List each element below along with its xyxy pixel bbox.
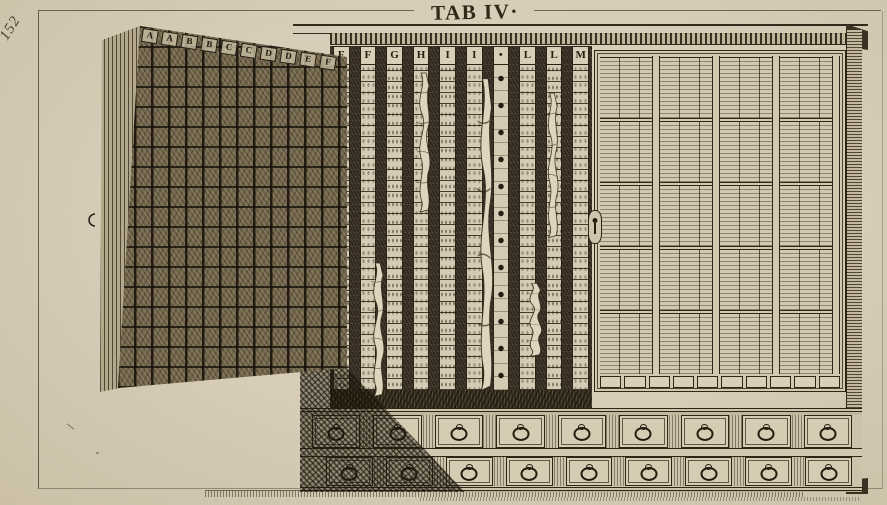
door-bottom-cell <box>746 376 767 388</box>
drawer <box>435 415 483 448</box>
drawer <box>558 415 606 448</box>
drawer <box>496 415 544 448</box>
ink-speck <box>96 452 99 454</box>
drawer-ring-pull <box>696 426 713 440</box>
top-border-line-right <box>534 10 881 11</box>
drawer-ring-pull <box>461 466 478 480</box>
door-bottom-cell <box>600 376 621 388</box>
drawer-ring-pull <box>760 466 777 480</box>
drawer <box>566 457 613 486</box>
drawer <box>804 415 852 448</box>
door-letter-cell: F <box>319 55 337 71</box>
drawer-ring-pull <box>512 426 529 440</box>
drawer-ring-pull <box>700 466 717 480</box>
drawer <box>685 457 732 486</box>
hinge-icon <box>84 212 98 228</box>
compartment-column <box>546 65 563 390</box>
open-door-grid-face <box>100 26 347 388</box>
door-bottom-cell <box>770 376 791 388</box>
column-letter-cell: I <box>439 46 456 65</box>
drawer-ring-pull <box>819 426 836 440</box>
drawer-ring-pull <box>758 426 775 440</box>
drawer-ring-pull <box>521 466 538 480</box>
door-bottom-cell <box>697 376 718 388</box>
door-letter-cell: C <box>220 40 238 56</box>
ground-shadow <box>420 497 860 501</box>
closed-door <box>594 50 846 392</box>
door-bottom-cell <box>794 376 815 388</box>
drawer-ring-pull <box>820 466 837 480</box>
catalog-card-grid <box>600 56 840 374</box>
door-letter-cell: E <box>299 52 317 68</box>
compartment-column <box>439 65 456 390</box>
keyhole-slot <box>594 223 596 234</box>
column-letter-cell: F <box>360 46 377 65</box>
door-letter-cell: D <box>279 49 297 65</box>
door-bottom-cell <box>649 376 670 388</box>
door-letter-cell: B <box>200 37 218 53</box>
drawer-ring-pull <box>581 466 598 480</box>
drawer <box>681 415 729 448</box>
column-letter-cell: I <box>466 46 483 65</box>
drawer-ring-pull <box>635 426 652 440</box>
compartment-column <box>386 65 403 390</box>
door-letter-cell: A <box>161 31 179 47</box>
drawer-ring-pull <box>573 426 590 440</box>
door-bottom-cell <box>819 376 840 388</box>
door-letter-cell: D <box>260 46 278 62</box>
drawer <box>742 415 790 448</box>
column-letter-cell: L <box>546 46 563 65</box>
page-number: 152 <box>0 13 25 44</box>
compartment-column <box>493 65 510 390</box>
drawer-ring-pull <box>640 466 657 480</box>
compartment-column <box>572 65 589 390</box>
drawer <box>745 457 792 486</box>
door-letter-cell: C <box>240 43 258 59</box>
compartment-column <box>413 65 430 390</box>
keyhole-icon <box>588 210 602 244</box>
engraving-plate: 152 TAB IV· FFGHII•LLM <box>0 0 887 505</box>
door-bottom-cell <box>624 376 645 388</box>
column-letter-cell: • <box>493 46 510 65</box>
door-bottom-cell <box>673 376 694 388</box>
interior-compartment-columns <box>330 65 592 390</box>
compartment-column <box>466 65 483 390</box>
drawer <box>506 457 553 486</box>
door-letter-cell: A <box>141 28 159 44</box>
column-letter-cell: M <box>572 46 589 65</box>
top-border-line-left <box>38 10 414 11</box>
compartment-column <box>360 65 377 390</box>
drawer <box>805 457 852 486</box>
drawer <box>619 415 667 448</box>
drawer <box>625 457 672 486</box>
column-letter-cell: H <box>413 46 430 65</box>
cornice-dentil-strip <box>330 33 850 45</box>
door-bottom-cell-row <box>600 376 840 388</box>
door-letter-cell: B <box>180 34 198 50</box>
drawer-ring-pull <box>451 426 468 440</box>
interior-column-letter-row: FFGHII•LLM <box>330 46 592 65</box>
plate-title: TAB IV· <box>415 0 535 26</box>
compartment-column <box>519 65 536 390</box>
column-letter-cell: G <box>386 46 403 65</box>
column-letter-cell: L <box>519 46 536 65</box>
door-bottom-cell <box>721 376 742 388</box>
